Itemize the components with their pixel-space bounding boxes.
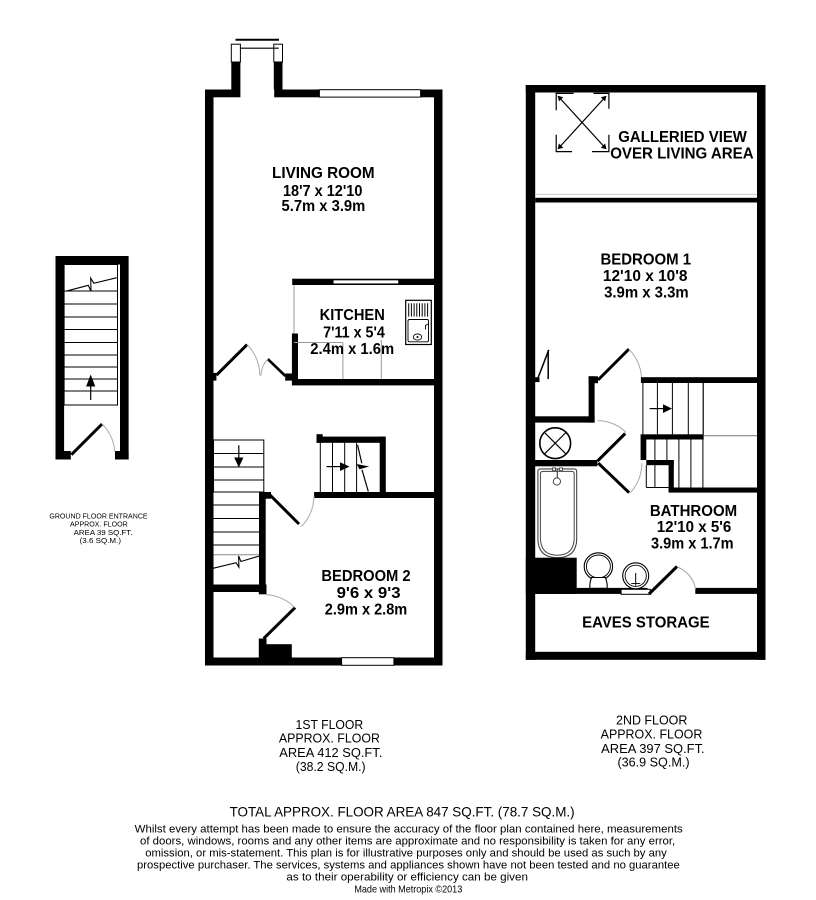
svg-text:2.4m x 1.6m: 2.4m x 1.6m bbox=[310, 341, 394, 358]
svg-text:9'6 x 9'3: 9'6 x 9'3 bbox=[337, 585, 401, 602]
svg-text:(3.6 SQ.M.): (3.6 SQ.M.) bbox=[80, 536, 122, 545]
svg-text:Whilst every attempt has been: Whilst every attempt has been made to en… bbox=[135, 824, 683, 836]
svg-text:TOTAL APPROX. FLOOR AREA 847 S: TOTAL APPROX. FLOOR AREA 847 SQ.FT. (78.… bbox=[230, 804, 575, 819]
svg-text:APPROX. FLOOR: APPROX. FLOOR bbox=[601, 727, 703, 742]
svg-text:prospective purchaser. The ser: prospective purchaser. The services, sys… bbox=[137, 860, 680, 872]
svg-text:of doors, windows, rooms and a: of doors, windows, rooms and any other i… bbox=[140, 836, 675, 848]
svg-text:BEDROOM 1: BEDROOM 1 bbox=[600, 251, 691, 268]
svg-text:3.9m x 1.7m: 3.9m x 1.7m bbox=[651, 536, 734, 553]
svg-text:KITCHEN: KITCHEN bbox=[320, 307, 385, 324]
svg-text:12'10 x 5'6: 12'10 x 5'6 bbox=[657, 519, 732, 536]
svg-text:Made with Metropix ©2013: Made with Metropix ©2013 bbox=[354, 884, 462, 895]
svg-text:BATHROOM: BATHROOM bbox=[650, 503, 737, 520]
svg-text:LIVING ROOM: LIVING ROOM bbox=[272, 165, 375, 182]
svg-text:(38.2 SQ.M.): (38.2 SQ.M.) bbox=[296, 759, 366, 774]
svg-text:(36.9 SQ.M.): (36.9 SQ.M.) bbox=[617, 755, 689, 770]
svg-text:7'11 x 5'4: 7'11 x 5'4 bbox=[323, 324, 385, 341]
svg-text:2ND FLOOR: 2ND FLOOR bbox=[616, 712, 687, 727]
svg-text:2.9m x 2.8m: 2.9m x 2.8m bbox=[325, 602, 408, 619]
svg-text:3.9m x 3.3m: 3.9m x 3.3m bbox=[604, 284, 689, 301]
svg-text:omission, or mis-statement. Th: omission, or mis-statement. This plan is… bbox=[145, 848, 667, 860]
svg-text:GALLERIED VIEW: GALLERIED VIEW bbox=[618, 129, 747, 146]
svg-text:12'10 x 10'8: 12'10 x 10'8 bbox=[603, 268, 688, 285]
svg-text:BEDROOM 2: BEDROOM 2 bbox=[321, 568, 410, 585]
svg-text:as to their operability or eff: as to their operability or efficiency ca… bbox=[286, 872, 528, 884]
svg-text:OVER LIVING AREA: OVER LIVING AREA bbox=[610, 146, 754, 163]
svg-text:APPROX. FLOOR: APPROX. FLOOR bbox=[279, 731, 380, 746]
svg-text:5.7m x 3.9m: 5.7m x 3.9m bbox=[282, 198, 366, 215]
svg-text:EAVES STORAGE: EAVES STORAGE bbox=[582, 615, 710, 632]
svg-text:AREA 412 SQ.FT.: AREA 412 SQ.FT. bbox=[279, 745, 382, 760]
